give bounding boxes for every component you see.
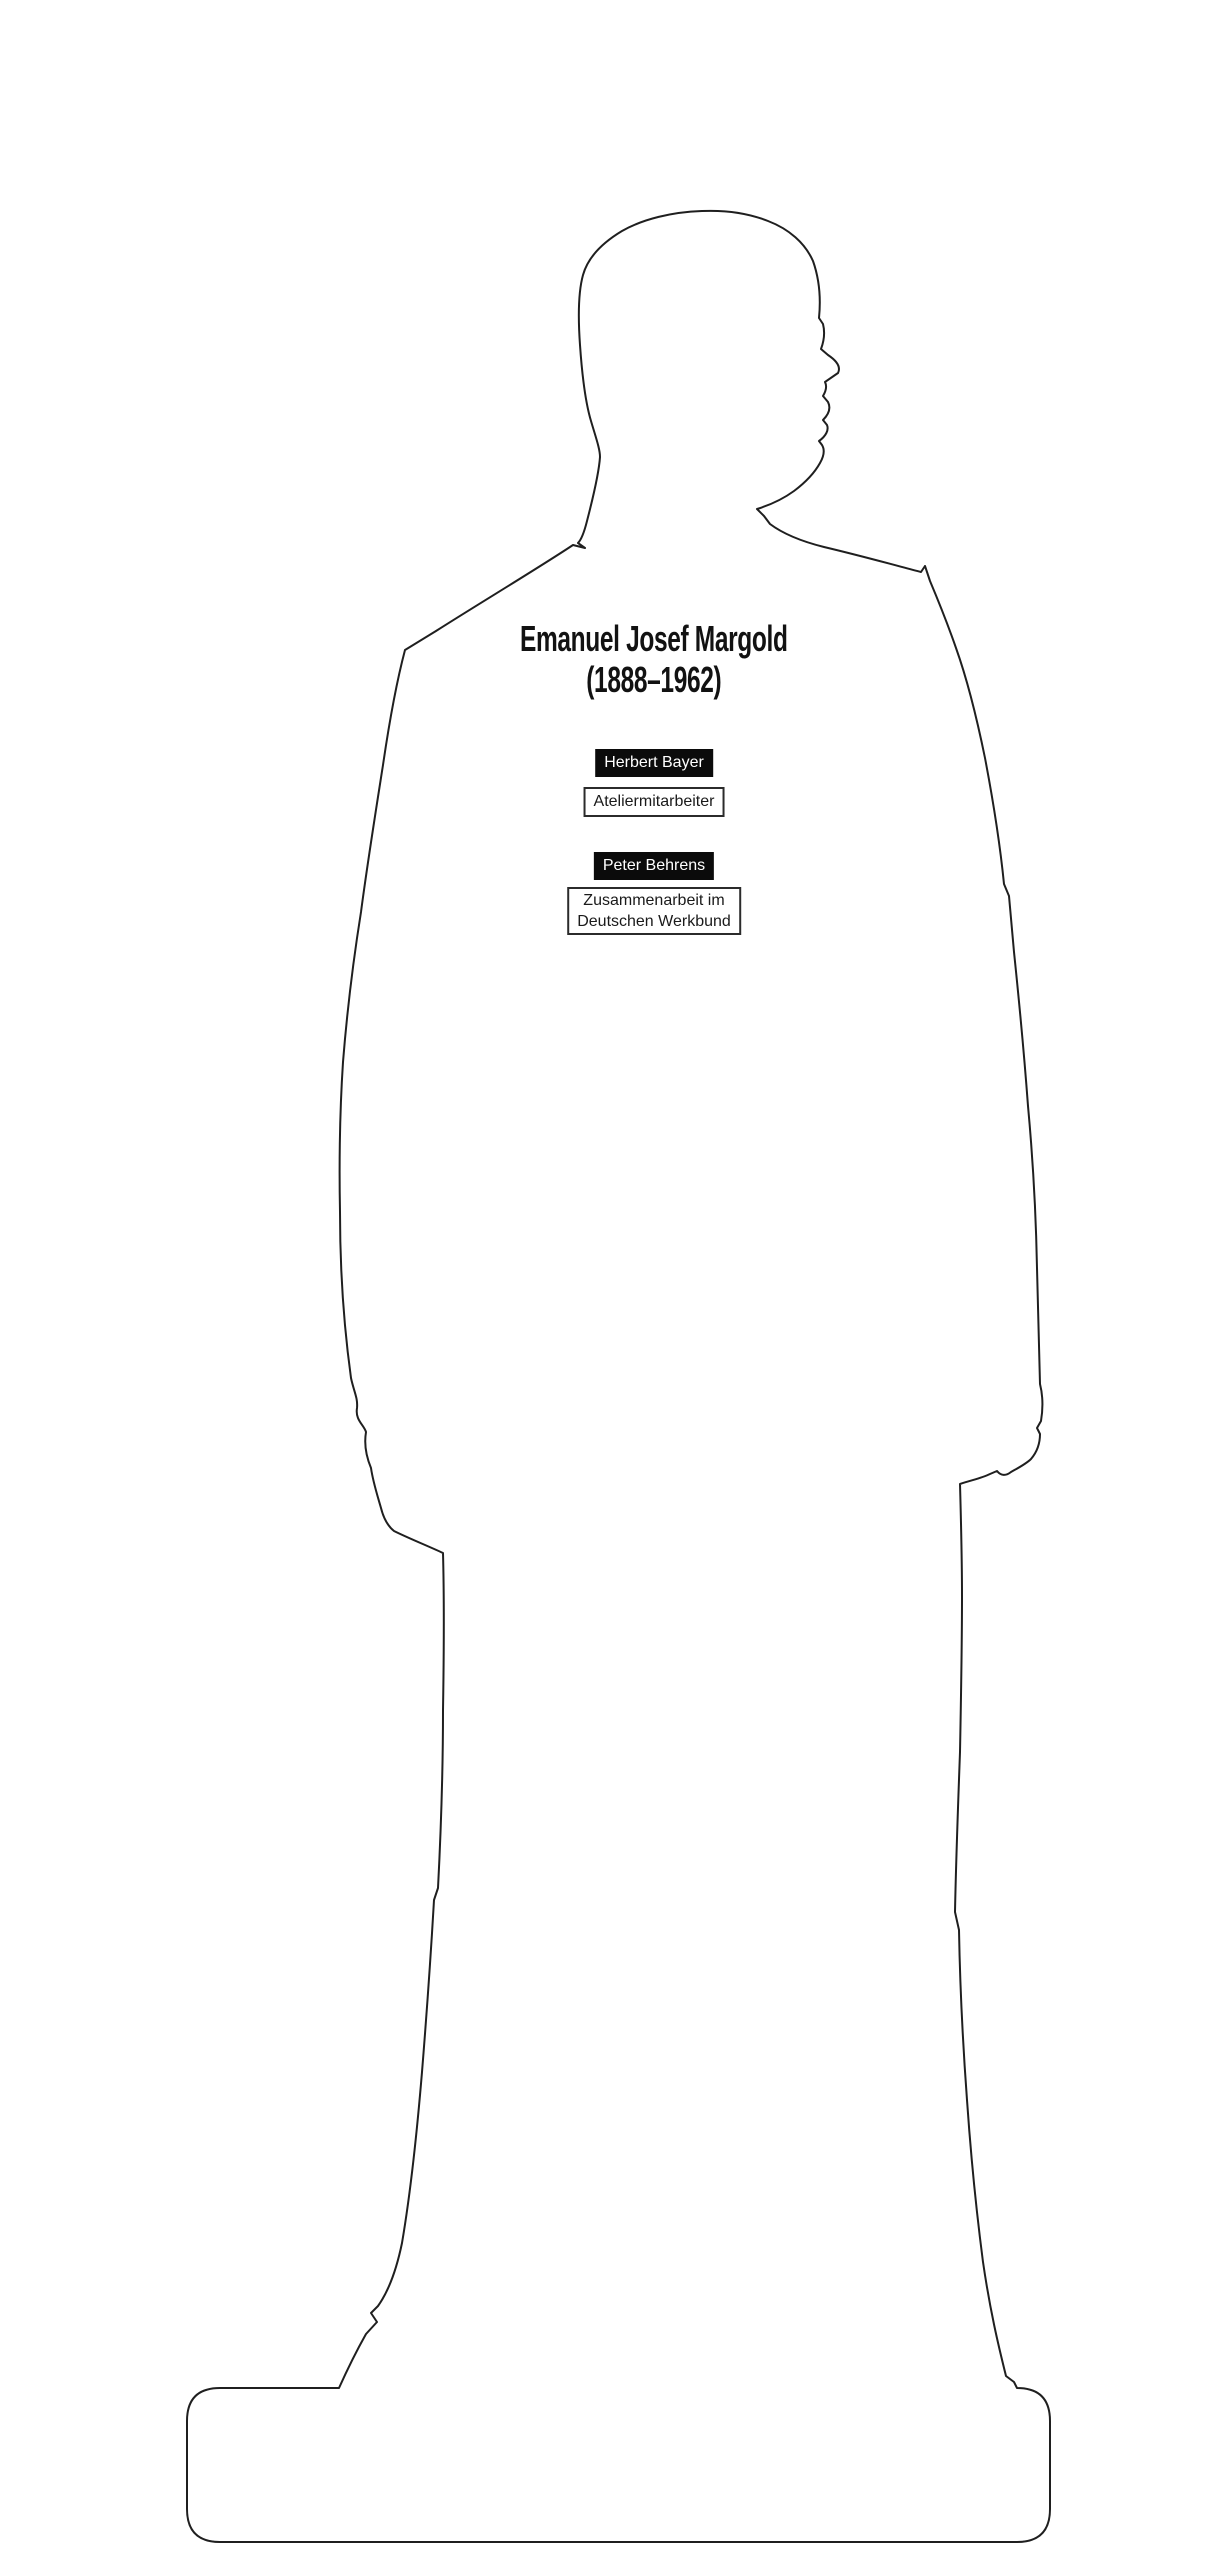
connection-person-tag-herbert-bayer[interactable]: Herbert Bayer [595, 749, 713, 777]
person-title-block: Emanuel Josef Margold (1888–1962) [354, 618, 954, 700]
figure-canvas: Emanuel Josef Margold (1888–1962) Herber… [0, 0, 1232, 2560]
person-lifespan: (1888–1962) [520, 659, 788, 700]
connection-relation-tag-deutscher-werkbund: Zusammenarbeit im Deutschen Werkbund [567, 887, 741, 935]
person-silhouette [0, 0, 1232, 2560]
connection-person-tag-peter-behrens[interactable]: Peter Behrens [594, 852, 714, 880]
silhouette-outline [187, 211, 1050, 2542]
connection-relation-tag-ateliermitarbeiter: Ateliermitarbeiter [584, 787, 725, 817]
person-title-text: Emanuel Josef Margold (1888–1962) [520, 618, 788, 700]
person-name: Emanuel Josef Margold [520, 618, 788, 659]
